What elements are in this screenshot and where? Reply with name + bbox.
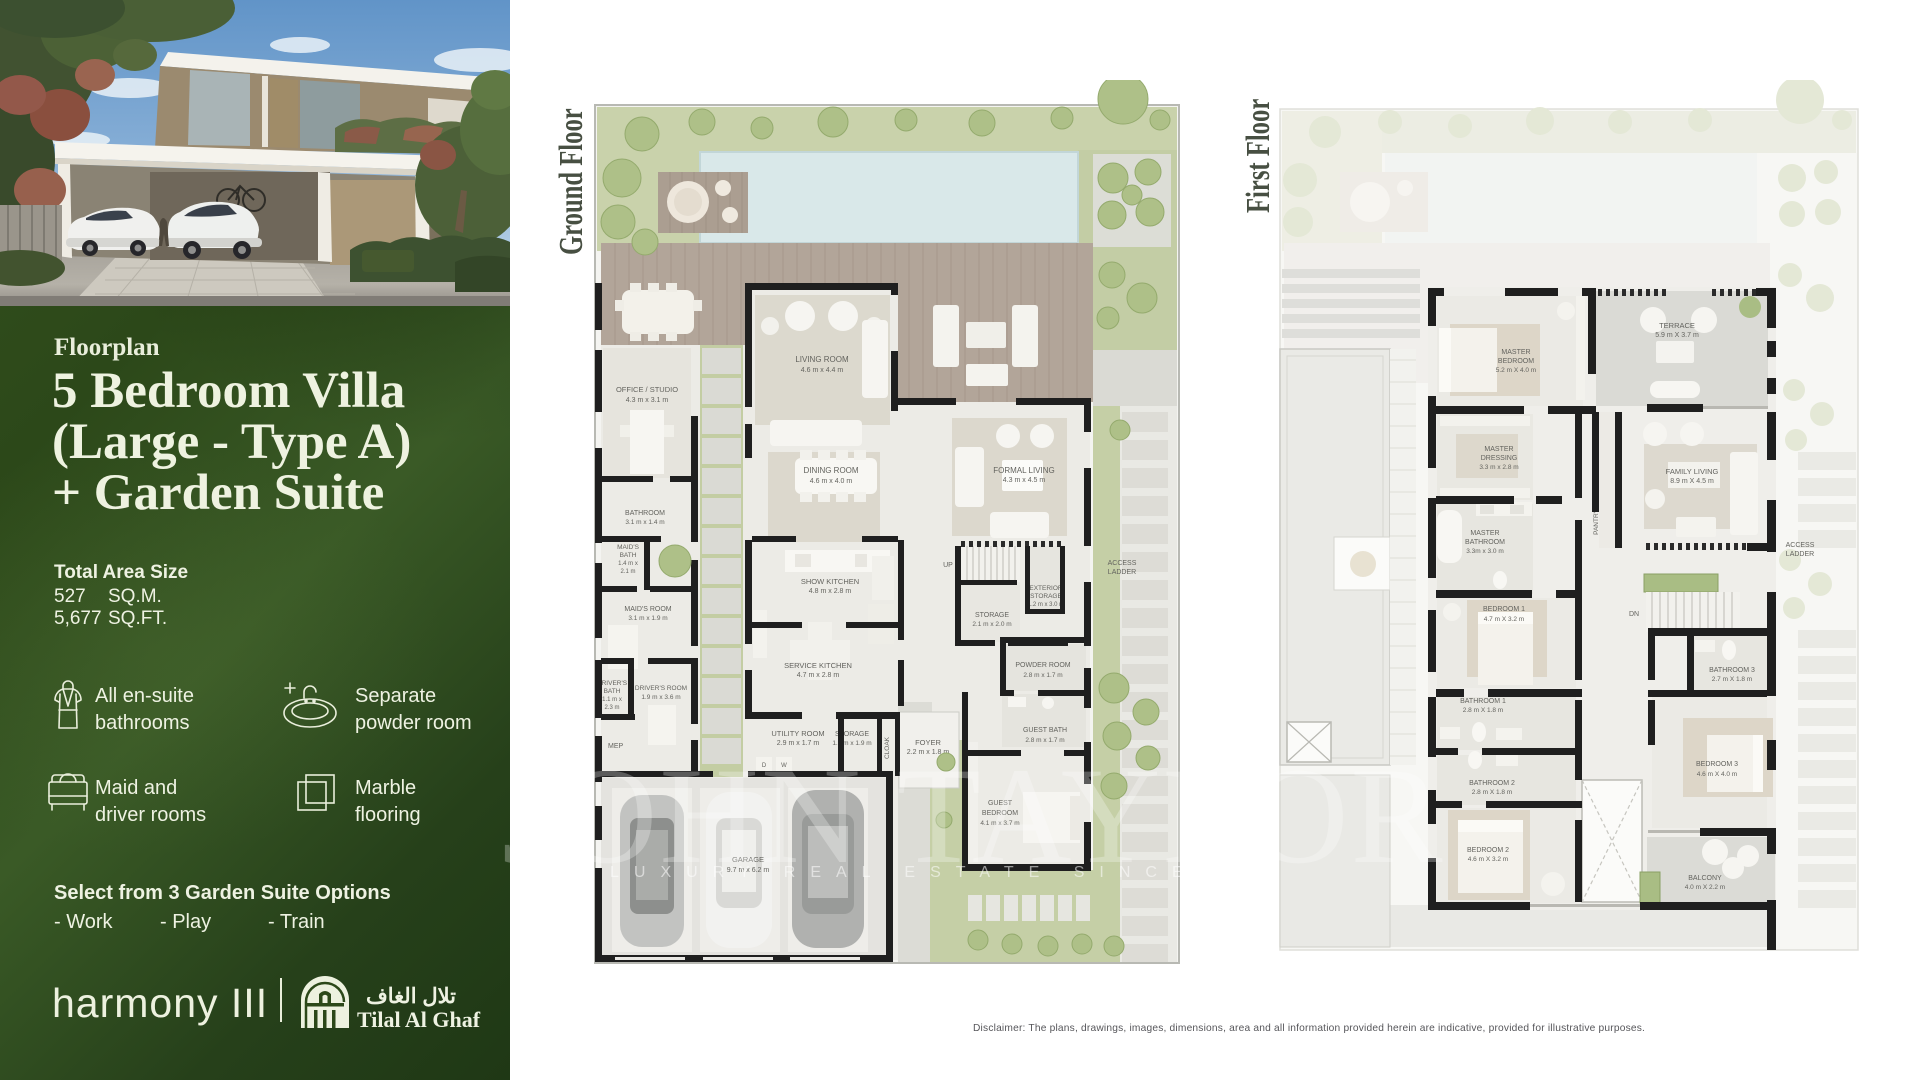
- svg-text:BATH: BATH: [620, 552, 637, 559]
- svg-text:2.8 m X 1.8 m: 2.8 m X 1.8 m: [1472, 789, 1512, 796]
- svg-text:3.1 m x 1.9 m: 3.1 m x 1.9 m: [628, 615, 667, 622]
- svg-text:BEDROOM: BEDROOM: [1498, 358, 1534, 365]
- svg-text:BATHROOM 2: BATHROOM 2: [1469, 780, 1515, 787]
- svg-text:EXTERIOR: EXTERIOR: [1029, 585, 1063, 592]
- svg-text:ACCESS: ACCESS: [1108, 560, 1137, 567]
- svg-text:SHOW KITCHEN: SHOW KITCHEN: [801, 577, 859, 586]
- svg-text:4.3 m x 3.1 m: 4.3 m x 3.1 m: [626, 397, 669, 404]
- svg-text:DINING ROOM: DINING ROOM: [803, 466, 858, 475]
- svg-text:1.9 m x 3.6 m: 1.9 m x 3.6 m: [641, 694, 680, 701]
- svg-text:BATHROOM 3: BATHROOM 3: [1709, 667, 1755, 674]
- svg-text:4.6 m X 3.2 m: 4.6 m X 3.2 m: [1468, 856, 1508, 863]
- svg-text:BATH: BATH: [604, 688, 621, 695]
- svg-text:ACCESS: ACCESS: [1786, 542, 1815, 549]
- svg-text:FORMAL LIVING: FORMAL LIVING: [993, 466, 1055, 475]
- svg-text:POWDER ROOM: POWDER ROOM: [1015, 662, 1070, 669]
- svg-text:UP: UP: [943, 562, 953, 569]
- svg-text:LADDER: LADDER: [1108, 569, 1136, 576]
- svg-text:BATHROOM: BATHROOM: [625, 510, 665, 517]
- svg-text:2.7 m X 1.8 m: 2.7 m X 1.8 m: [1712, 676, 1752, 683]
- svg-text:BATHROOM 1: BATHROOM 1: [1460, 698, 1506, 705]
- svg-text:8.9 m X 4.5 m: 8.9 m X 4.5 m: [1670, 478, 1714, 485]
- svg-text:4.6 m x 4.4 m: 4.6 m x 4.4 m: [801, 367, 844, 374]
- svg-text:1.2 m x 3.0 m: 1.2 m x 3.0 m: [1028, 602, 1064, 608]
- svg-text:GUEST BATH: GUEST BATH: [1023, 727, 1067, 734]
- svg-text:LIVING ROOM: LIVING ROOM: [795, 355, 849, 364]
- svg-text:2.8 m x 1.7 m: 2.8 m x 1.7 m: [1023, 672, 1062, 679]
- svg-text:MAID'S: MAID'S: [617, 544, 639, 551]
- svg-text:MASTER: MASTER: [1484, 446, 1513, 453]
- svg-text:TERRACE: TERRACE: [1659, 321, 1695, 330]
- svg-text:BEDROOM 3: BEDROOM 3: [1696, 761, 1738, 768]
- svg-text:2.8 m X 1.8 m: 2.8 m X 1.8 m: [1463, 707, 1503, 714]
- svg-text:BALCONY: BALCONY: [1688, 875, 1722, 882]
- svg-text:MASTER: MASTER: [1501, 349, 1530, 356]
- svg-text:2.1 m x 2.0 m: 2.1 m x 2.0 m: [972, 621, 1011, 628]
- svg-text:DRIVER'S ROOM: DRIVER'S ROOM: [635, 685, 687, 692]
- svg-text:1.4 m x: 1.4 m x: [618, 561, 638, 567]
- svg-text:MASTER: MASTER: [1470, 530, 1499, 537]
- svg-text:4.6 m X 4.0 m: 4.6 m X 4.0 m: [1697, 771, 1737, 778]
- svg-text:LADDER: LADDER: [1786, 551, 1814, 558]
- svg-text:4.7 m x 2.8 m: 4.7 m x 2.8 m: [797, 672, 840, 679]
- svg-text:SERVICE KITCHEN: SERVICE KITCHEN: [784, 661, 852, 670]
- svg-text:FAMILY LIVING: FAMILY LIVING: [1666, 467, 1719, 476]
- svg-text:4.8 m x 2.8 m: 4.8 m x 2.8 m: [809, 588, 852, 595]
- svg-text:1.1 m x: 1.1 m x: [602, 697, 622, 703]
- svg-text:3.1 m x 1.4 m: 3.1 m x 1.4 m: [625, 519, 664, 526]
- svg-text:MAID'S ROOM: MAID'S ROOM: [624, 606, 671, 613]
- svg-text:2.1 m: 2.1 m: [620, 569, 635, 575]
- svg-text:STORAGE: STORAGE: [1030, 593, 1062, 600]
- svg-text:PANTRY: PANTRY: [1593, 508, 1600, 534]
- svg-text:DRESSING: DRESSING: [1481, 455, 1518, 462]
- svg-text:5.2 m X 4.0 m: 5.2 m X 4.0 m: [1496, 367, 1536, 374]
- svg-text:3.3 m x 2.8 m: 3.3 m x 2.8 m: [1479, 464, 1518, 471]
- svg-text:4.6 m x 4.0 m: 4.6 m x 4.0 m: [810, 478, 853, 485]
- svg-text:BEDROOM 2: BEDROOM 2: [1467, 847, 1509, 854]
- svg-text:OFFICE / STUDIO: OFFICE / STUDIO: [616, 385, 678, 394]
- svg-text:2.3 m: 2.3 m: [604, 705, 619, 711]
- svg-text:4.0 m X 2.2 m: 4.0 m X 2.2 m: [1685, 884, 1725, 891]
- svg-text:BATHROOM: BATHROOM: [1465, 539, 1505, 546]
- svg-text:STORAGE: STORAGE: [975, 612, 1009, 619]
- svg-text:4.3 m x 4.5 m: 4.3 m x 4.5 m: [1003, 477, 1046, 484]
- svg-text:3.3m x 3.0 m: 3.3m x 3.0 m: [1466, 548, 1504, 555]
- svg-text:BEDROOM 1: BEDROOM 1: [1483, 606, 1525, 613]
- svg-text:5.9 m X 3.7 m: 5.9 m X 3.7 m: [1655, 332, 1699, 339]
- svg-text:DN: DN: [1629, 611, 1639, 618]
- svg-text:4.7 m X 3.2 m: 4.7 m X 3.2 m: [1484, 616, 1524, 623]
